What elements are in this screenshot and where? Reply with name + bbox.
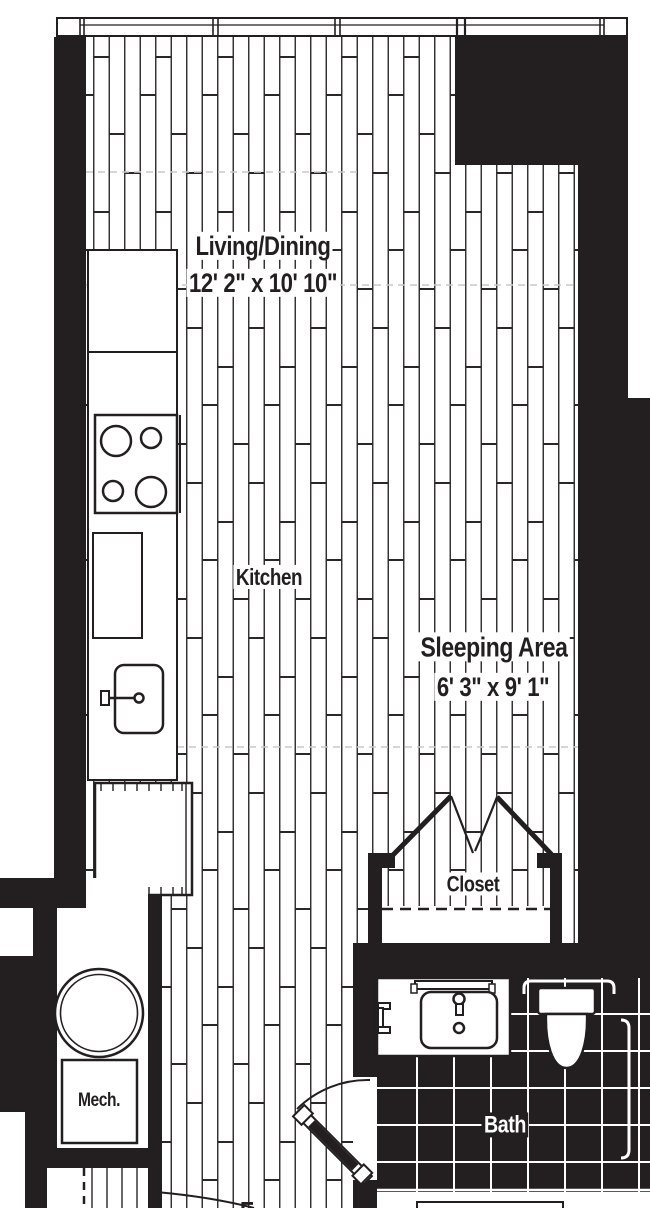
bath-threshold (377, 1192, 650, 1208)
floorplan-canvas: Living/Dining 12' 2" x 10' 10" Kitchen S… (0, 0, 650, 1208)
stove-burners (95, 415, 180, 513)
vanity-sink (377, 978, 510, 1056)
living-dining-dimensions: 12' 2" x 10' 10" (187, 269, 340, 297)
living-dining-label: Living/Dining (193, 232, 333, 260)
closet-label: Closet (444, 872, 502, 895)
entry-closet (47, 1168, 148, 1208)
floorplan-drawing (0, 0, 650, 1208)
mech-label: Mech. (78, 1091, 120, 1111)
water-heater (55, 969, 143, 1057)
window-band (57, 18, 627, 36)
kitchen-label: Kitchen (233, 565, 304, 589)
bath-label: Bath (481, 1112, 528, 1137)
entry-label-fragment: E (240, 1196, 261, 1208)
sleeping-area-label: Sleeping Area (418, 632, 570, 661)
sleeping-area-dimensions: 6' 3" x 9' 1" (434, 673, 551, 701)
